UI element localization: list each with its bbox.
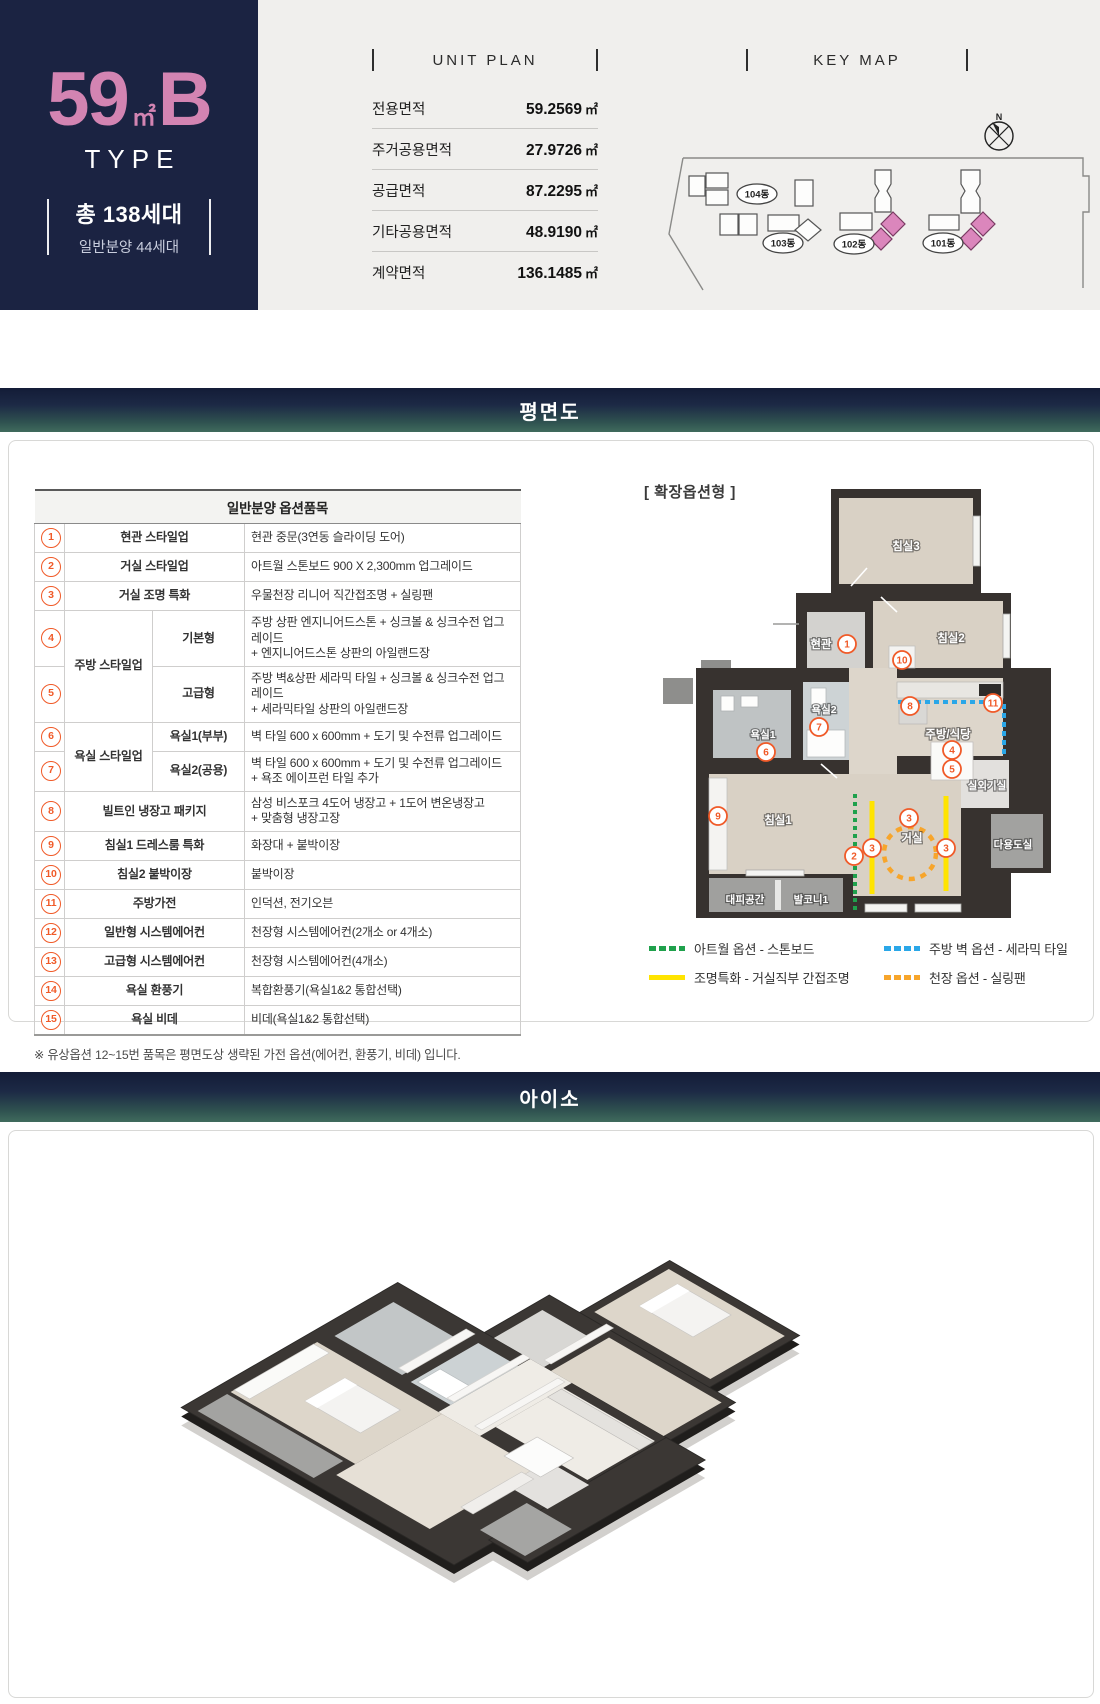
iso-section-box [8,1130,1094,1698]
option-desc: 주방 상판 엔지니어드스톤 + 싱크볼 & 싱크수전 업그레이드+ 엔지니어드스… [245,611,521,667]
option-number: 15 [41,1010,61,1030]
plan-marker: 3 [900,809,918,827]
option-category: 빌트인 냉장고 패키지 [65,791,245,831]
plan-marker: 10 [893,651,911,669]
floorplan-section-bar: 평면도 [0,388,1100,432]
unit-plan-table: 전용면적 59.2569㎡ 주거공용면적 27.9726㎡ 공급면적 87.22… [372,88,598,292]
type-hero-panel: 59 ㎡ B TYPE 총 138세대 일반분양 44세대 [0,0,258,310]
svg-text:3: 3 [943,844,949,855]
header-tick-left [746,49,748,71]
option-category: 거실 스타일업 [65,553,245,582]
option-desc: 벽 타일 600 x 600mm + 도기 및 수전류 업그레이드 [245,722,521,751]
header-tick-right [966,49,968,71]
plan-marker: 6 [757,743,775,761]
legend-label: 아트월 옵션 - 스톤보드 [694,939,814,958]
room-label-outdoor: 실외기실 [968,779,1007,792]
option-number: 13 [41,952,61,972]
area-label: 계약면적 [372,262,425,283]
option-category: 침실1 드레스룸 특화 [65,831,245,860]
option-number: 10 [41,865,61,885]
building-label-103: 103동 [771,239,796,250]
svg-text:N: N [996,112,1003,122]
key-map-illustration: N [645,112,1090,294]
option-desc: 아트월 스톤보드 900 X 2,300mm 업그레이드 [245,553,521,582]
option-desc: 주방 벽&상판 세라믹 타일 + 싱크볼 & 싱크수전 업그레이드+ 세라믹타일… [245,666,521,722]
building-label-104: 104동 [745,190,770,201]
option-subcategory: 욕실2(공용) [153,751,245,791]
svg-text:3: 3 [906,814,912,825]
floorplan-bar-title: 평면도 [519,396,580,425]
option-number: 1 [41,528,61,548]
key-map-header: KEY MAP [746,48,968,72]
room-label-shelter: 대피공간 [726,893,765,906]
svg-text:4: 4 [949,746,955,757]
option-desc: 비데(욕실1&2 통합선택) [245,1005,521,1035]
area-label: 전용면적 [372,98,425,119]
building-outlines [689,170,980,241]
legend-label: 조명특화 - 거실직부 간접조명 [694,968,850,987]
plan-marker: 3 [937,839,955,857]
type-label: TYPE [78,144,181,175]
option-desc: 천장형 시스템에어컨(2개소 or 4개소) [245,918,521,947]
svg-text:11: 11 [988,699,999,710]
room-label-balcony1: 발코니1 [794,893,829,906]
svg-text:3: 3 [869,844,875,855]
page: 59 ㎡ B TYPE 총 138세대 일반분양 44세대 UNIT PLAN [0,0,1100,1704]
area-row: 기타공용면적 48.9190㎡ [372,211,598,252]
option-desc: 우물천장 리니어 직간접조명 + 실링팬 [245,582,521,611]
area-value: 87.2295㎡ [526,181,598,201]
option-row: 13 고급형 시스템에어컨 천장형 시스템에어컨(4개소) [35,947,521,976]
plan-marker: 9 [709,807,727,825]
area-row: 공급면적 87.2295㎡ [372,170,598,211]
unit-plan-header: UNIT PLAN [372,48,598,72]
option-row: 12 일반형 시스템에어컨 천장형 시스템에어컨(2개소 or 4개소) [35,918,521,947]
plan-marker: 11 [984,694,1002,712]
area-value: 59.2569㎡ [526,99,598,119]
legend-swatch-lighting [649,975,685,980]
room-label-bed3: 침실3 [892,539,920,553]
option-category: 주방가전 [65,889,245,918]
area-value: 136.1485㎡ [517,263,598,283]
legend-label: 주방 벽 옵션 - 세라믹 타일 [929,939,1068,958]
area-row: 계약면적 136.1485㎡ [372,252,598,292]
legend-swatch-kitchen-wall [884,946,920,951]
option-row: 8 빌트인 냉장고 패키지 삼성 비스포크 4도어 냉장고 + 1도어 변온냉장… [35,791,521,831]
option-row: 9 침실1 드레스룸 특화 화장대 + 붙박이장 [35,831,521,860]
option-row: 11 주방가전 인덕션, 전기오븐 [35,889,521,918]
option-number: 7 [41,761,61,781]
option-row: 14 욕실 환풍기 복합환풍기(욕실1&2 통합선택) [35,976,521,1005]
option-row: 10 침실2 붙박이장 붙박이장 [35,860,521,889]
header-tick-left [372,49,374,71]
compass-icon: N [985,112,1013,150]
divider-bar-left [47,199,49,255]
plan-marker: 2 [845,847,863,865]
unit-plan-title: UNIT PLAN [432,52,537,69]
svg-text:6: 6 [763,748,769,759]
option-desc: 벽 타일 600 x 600mm + 도기 및 수전류 업그레이드+ 욕조 에이… [245,751,521,791]
room-label-bath1: 욕실1 [750,728,775,741]
option-table-title: 일반분양 옵션품목 [35,490,521,524]
option-desc: 삼성 비스포크 4도어 냉장고 + 1도어 변온냉장고+ 맞춤형 냉장고장 [245,791,521,831]
plan-marker: 4 [943,741,961,759]
total-units-text: 총 138세대 [75,197,182,229]
option-number: 12 [41,923,61,943]
option-row: 3 거실 조명 특화 우물천장 리니어 직간접조명 + 실링팬 [35,582,521,611]
option-category: 거실 조명 특화 [65,582,245,611]
option-category: 고급형 시스템에어컨 [65,947,245,976]
legend-swatch-ceiling [884,975,920,980]
area-row: 주거공용면적 27.9726㎡ [372,129,598,170]
type-size-number: 59 [47,62,128,138]
option-desc: 인덕션, 전기오븐 [245,889,521,918]
plan-legend: 아트월 옵션 - 스톤보드 주방 벽 옵션 - 세라믹 타일 조명특화 - 거실… [649,939,1099,987]
type-size: 59 ㎡ B [47,62,210,138]
option-desc: 복합환풍기(욕실1&2 통합선택) [245,976,521,1005]
option-number: 3 [41,586,61,606]
option-category: 욕실 환풍기 [65,976,245,1005]
room-label-living: 거실 [901,831,922,845]
room-label-entry: 현관 [810,637,832,651]
svg-text:8: 8 [907,702,913,713]
option-row: 4 주방 스타일업 기본형 주방 상판 엔지니어드스톤 + 싱크볼 & 싱크수전… [35,611,521,667]
option-desc: 붙박이장 [245,860,521,889]
isometric-view-image [81,1139,1021,1689]
type-size-letter: B [158,62,211,138]
floorplan-section-box: 일반분양 옵션품목 1 현관 스타일업 현관 중문(3연동 슬라이딩 도어) 2… [8,440,1094,1022]
option-category: 욕실 비데 [65,1005,245,1035]
option-number: 14 [41,981,61,1001]
option-number: 2 [41,557,61,577]
area-label: 기타공용면적 [372,221,452,242]
unit-counts: 총 138세대 일반분양 44세대 [47,197,210,257]
plan-marker: 5 [943,760,961,778]
floor-plan-diagram: 침실3 현관 침실2 욕실2 욕실1 주방/식당 실외기실 다용도실 침실1 거… [656,456,1061,926]
option-number: 6 [41,727,61,747]
area-label: 공급면적 [372,180,425,201]
building-label-102: 102동 [842,240,867,251]
legend-item: 천장 옵션 - 실링팬 [884,968,1099,987]
svg-text:7: 7 [816,723,822,734]
iso-bar-title: 아이소 [519,1083,580,1112]
svg-text:5: 5 [949,765,955,776]
option-category: 일반형 시스템에어컨 [65,918,245,947]
header-tick-right [596,49,598,71]
room-label-kitchen: 주방/식당 [925,727,971,741]
option-category: 침실2 붙박이장 [65,860,245,889]
area-value: 27.9726㎡ [526,140,598,160]
room-label-bath2: 욕실2 [811,703,836,716]
legend-item: 조명특화 - 거실직부 간접조명 [649,968,884,987]
option-desc: 천장형 시스템에어컨(4개소) [245,947,521,976]
legend-swatch-artwall [649,946,685,951]
iso-section-bar: 아이소 [0,1072,1100,1122]
exterior-unit [663,678,693,704]
room-label-utility: 다용도실 [994,838,1033,851]
option-number: 5 [41,684,61,704]
building-label-101: 101동 [931,239,956,250]
option-category: 현관 스타일업 [65,524,245,553]
top-strip: 59 ㎡ B TYPE 총 138세대 일반분양 44세대 UNIT PLAN [0,0,1100,310]
option-table-wrap: 일반분양 옵션품목 1 현관 스타일업 현관 중문(3연동 슬라이딩 도어) 2… [34,489,520,1063]
area-value: 48.9190㎡ [526,222,598,242]
svg-text:2: 2 [851,852,857,863]
plan-marker: 3 [863,839,881,857]
option-subcategory: 욕실1(부부) [153,722,245,751]
option-desc: 현관 중문(3연동 슬라이딩 도어) [245,524,521,553]
option-row: 1 현관 스타일업 현관 중문(3연동 슬라이딩 도어) [35,524,521,553]
option-row: 6 욕실 스타일업 욕실1(부부) 벽 타일 600 x 600mm + 도기 … [35,722,521,751]
area-label: 주거공용면적 [372,139,452,160]
room-label-bed2: 침실2 [937,631,965,645]
option-category-group: 욕실 스타일업 [65,722,153,791]
option-footnote: ※ 유상옵션 12~15번 품목은 평면도상 생략된 가전 옵션(에어컨, 환풍… [34,1045,520,1063]
option-number: 11 [41,894,61,914]
option-subcategory: 기본형 [153,611,245,667]
general-sale-text: 일반분양 44세대 [75,236,182,257]
svg-text:10: 10 [896,656,908,667]
plan-marker: 7 [810,718,828,736]
option-desc: 화장대 + 붙박이장 [245,831,521,860]
option-number: 4 [41,628,61,648]
legend-item: 주방 벽 옵션 - 세라믹 타일 [884,939,1099,958]
divider-bar-right [209,199,211,255]
svg-text:1: 1 [844,640,850,651]
room-label-bed1: 침실1 [764,813,792,827]
option-row: 2 거실 스타일업 아트월 스톤보드 900 X 2,300mm 업그레이드 [35,553,521,582]
option-number: 9 [41,836,61,856]
option-table: 일반분양 옵션품목 1 현관 스타일업 현관 중문(3연동 슬라이딩 도어) 2… [34,489,521,1036]
option-row: 15 욕실 비데 비데(욕실1&2 통합선택) [35,1005,521,1035]
key-map-title: KEY MAP [813,52,900,69]
legend-item: 아트월 옵션 - 스톤보드 [649,939,884,958]
option-number: 8 [41,801,61,821]
svg-text:9: 9 [715,812,721,823]
plan-marker: 1 [838,635,856,653]
area-row: 전용면적 59.2569㎡ [372,88,598,129]
plan-marker: 8 [901,697,919,715]
option-subcategory: 고급형 [153,666,245,722]
type-size-unit: ㎡ [132,106,156,130]
option-category-group: 주방 스타일업 [65,611,153,723]
legend-label: 천장 옵션 - 실링팬 [929,968,1026,987]
